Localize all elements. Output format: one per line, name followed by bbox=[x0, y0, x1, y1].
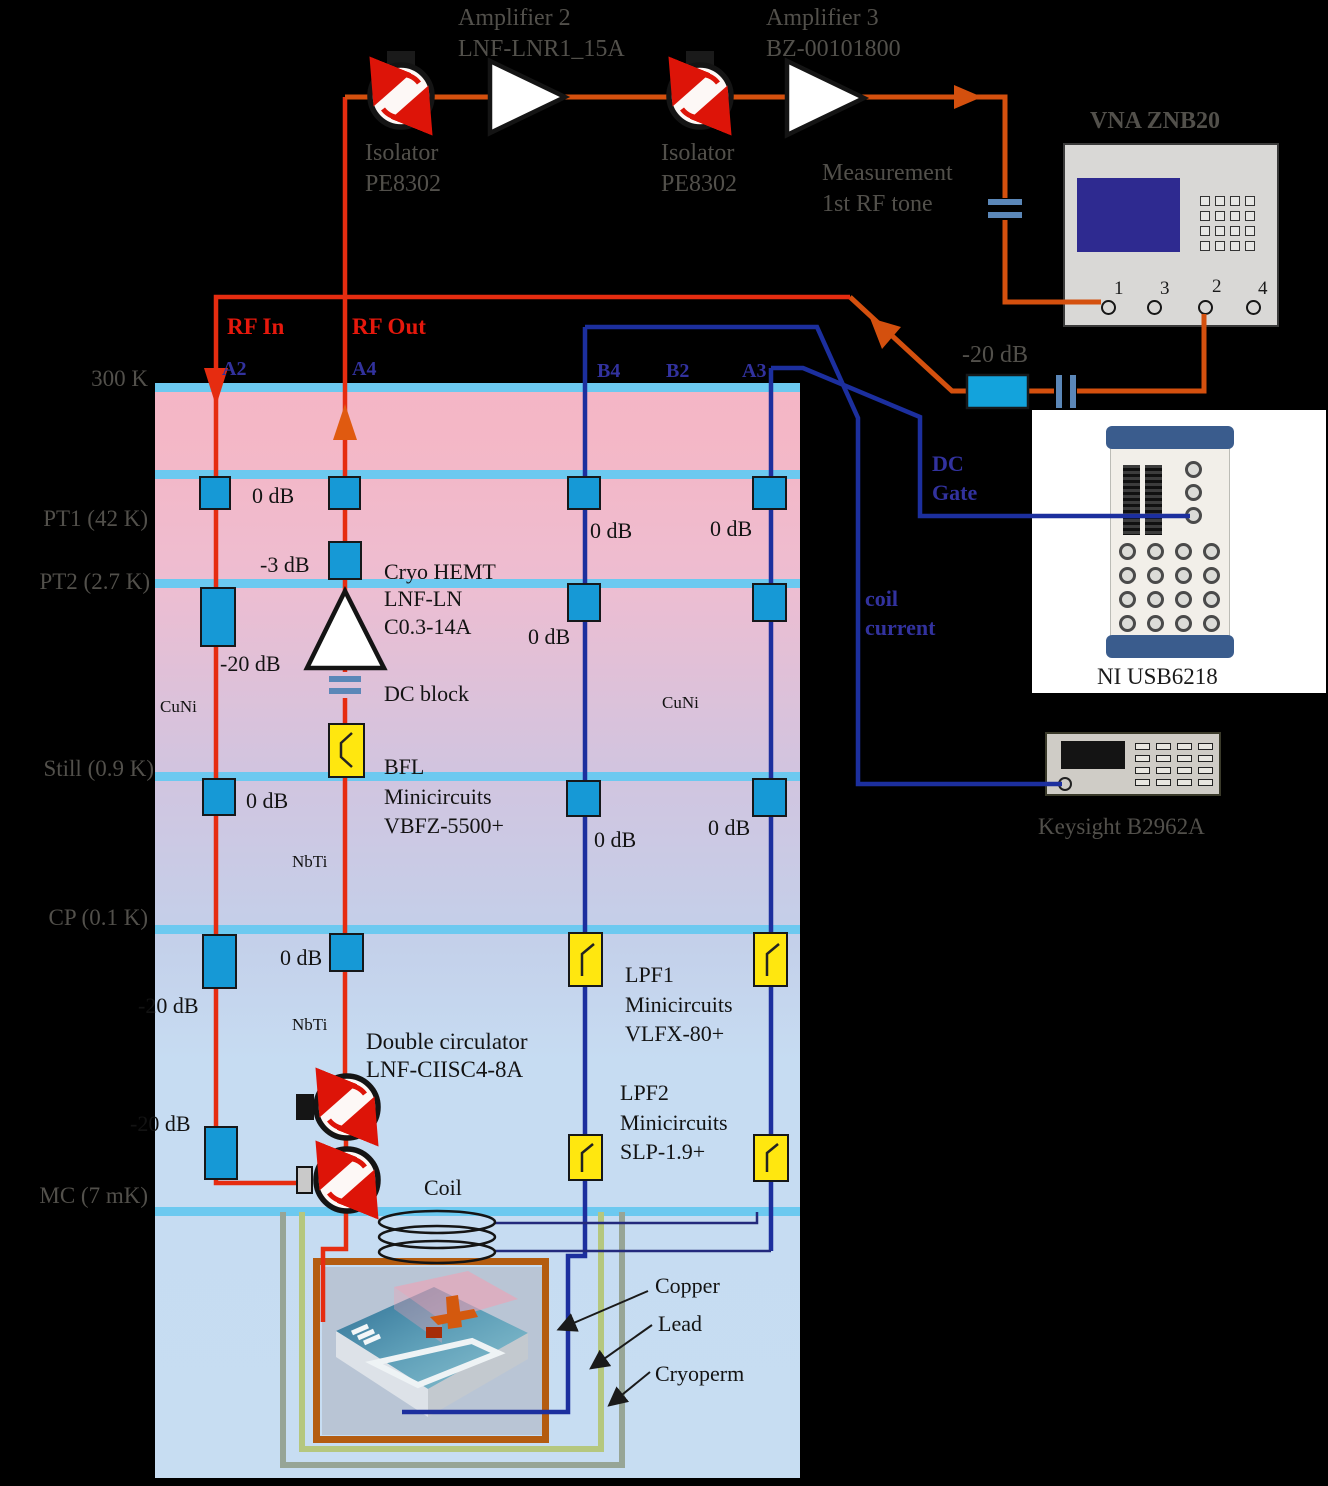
low-pass-filter-icon bbox=[570, 934, 601, 985]
cryo-hemt-amplifier-icon bbox=[307, 591, 384, 668]
lpf1-label: LPF1MinicircuitsVLFX-80+ bbox=[625, 960, 733, 1049]
rf-out-arrow-icon bbox=[333, 404, 357, 440]
stage-label-mc: MC (7 mK) bbox=[18, 1181, 148, 1211]
atten-label-b4-still: 0 dB bbox=[594, 826, 636, 855]
atten-label-a4-pt2: -3 dB bbox=[260, 551, 310, 580]
attenuator-a3-pt2 bbox=[752, 583, 787, 622]
port-a3-label: A3 bbox=[742, 358, 766, 384]
stage-label-pt1: PT1 (42 K) bbox=[18, 504, 148, 534]
attenuator-a3-pt1 bbox=[752, 476, 787, 510]
dc-gate-label: DCGate bbox=[932, 450, 977, 507]
wire-material-nbti-upper: NbTi bbox=[292, 851, 327, 873]
low-pass-filter-icon bbox=[755, 1136, 787, 1180]
atten-label-a2-mc: -20 dB bbox=[130, 1110, 191, 1139]
port-a4-label: A4 bbox=[352, 356, 376, 382]
wire-coil-lead-ground bbox=[495, 1212, 757, 1223]
stage-label-300k: 300 K bbox=[18, 364, 148, 394]
amp-chain-arrow-icon bbox=[954, 85, 982, 109]
wiring-diagram-canvas: 1 3 2 4 bbox=[0, 0, 1328, 1486]
vna-port-3-number: 3 bbox=[1160, 278, 1170, 300]
attenuator-a2-still bbox=[202, 778, 236, 816]
source-meter-label: Keysight B2962A bbox=[1038, 812, 1205, 842]
lpf2-a3-box bbox=[753, 1134, 789, 1182]
isolator-1-icon bbox=[370, 51, 432, 127]
stage-label-cp: CP (0.1 K) bbox=[18, 903, 148, 933]
wire-material-nbti-lower: NbTi bbox=[292, 1014, 327, 1036]
vna-port-2-number: 2 bbox=[1212, 276, 1222, 298]
rf-out-label: RF Out bbox=[352, 312, 426, 342]
low-pass-filter-icon bbox=[570, 1136, 601, 1179]
low-pass-filter-icon bbox=[755, 934, 786, 985]
isolator-1-label: IsolatorPE8302 bbox=[365, 138, 441, 200]
wire-material-cuni-right: CuNi bbox=[662, 692, 699, 714]
attenuator-a3-still bbox=[752, 778, 787, 817]
isolator-2-icon bbox=[669, 51, 731, 127]
atten-label-a4-cp: 0 dB bbox=[280, 944, 322, 973]
amplifier-3-icon bbox=[787, 61, 864, 135]
lpf2-label: LPF2MinicircuitsSLP-1.9+ bbox=[620, 1078, 728, 1167]
port-b2-label: B2 bbox=[666, 358, 689, 384]
attenuator-b4-still bbox=[566, 780, 601, 817]
amplifier-2-label: Amplifier 2LNF-LNR1_15A bbox=[458, 3, 625, 65]
amplifier-2-icon bbox=[490, 61, 565, 133]
atten-label-a2-pt2: -20 dB bbox=[220, 650, 281, 679]
lpf1-a3-box bbox=[753, 932, 788, 987]
band-pass-filter-icon bbox=[330, 725, 363, 776]
wire-material-cuni-left: CuNi bbox=[160, 696, 197, 718]
lead-pointer-arrow bbox=[594, 1325, 652, 1366]
copper-shield-label: Copper bbox=[655, 1272, 720, 1301]
atten-label-a2-cp: -20 dB bbox=[138, 992, 199, 1021]
wiring-layer bbox=[0, 0, 1328, 1486]
coil-icon bbox=[379, 1211, 495, 1263]
atten-label-pt1-pair: 0 dB bbox=[252, 482, 294, 511]
coil-current-label: coilcurrent bbox=[865, 585, 935, 642]
atten-label-a3-pt1: 0 dB bbox=[710, 515, 752, 544]
dc-block-capacitor-hemt bbox=[329, 676, 361, 694]
hemt-label: Cryo HEMTLNF-LNC0.3-14A bbox=[384, 558, 496, 640]
port-b4-label: B4 bbox=[597, 358, 620, 384]
attenuator-a4-minus3db bbox=[328, 541, 362, 580]
attenuator-a2-minus20db-pt2 bbox=[200, 587, 236, 647]
port2-return-arrow-icon bbox=[870, 318, 901, 349]
lpf1-b4-box bbox=[568, 932, 603, 987]
dc-block-capacitor-top bbox=[988, 199, 1022, 218]
atten-label-a3-still: 0 dB bbox=[708, 814, 750, 843]
dc-block-label: DC block bbox=[384, 680, 469, 709]
stage-label-still: Still (0.9 K) bbox=[14, 754, 154, 784]
measurement-tone-note: Measurement1st RF tone bbox=[822, 158, 953, 220]
coil-label: Coil bbox=[424, 1174, 462, 1203]
amplifier-3-label: Amplifier 3BZ-00101800 bbox=[766, 3, 901, 65]
ni-daq-label: NI USB6218 bbox=[1097, 662, 1218, 692]
cryoperm-pointer-arrow bbox=[612, 1372, 650, 1403]
circulator-lower-icon bbox=[297, 1149, 378, 1211]
stage-label-pt2: PT2 (2.7 K) bbox=[18, 567, 150, 597]
atten-label-a2-still: 0 dB bbox=[246, 787, 288, 816]
attenuator-a4-pt1 bbox=[328, 476, 361, 510]
vna-port-1-number: 1 bbox=[1114, 278, 1124, 300]
attenuator-a2-minus20db-cp bbox=[202, 934, 237, 989]
vna-port-4-number: 4 bbox=[1258, 278, 1268, 300]
atten-label-b4-pt2: 0 dB bbox=[528, 623, 570, 652]
port-a2-label: A2 bbox=[222, 356, 246, 382]
atten-label-b4-pt1: 0 dB bbox=[590, 517, 632, 546]
circulator-upper-icon bbox=[296, 1076, 378, 1138]
cryoperm-shield-label: Cryoperm bbox=[655, 1360, 744, 1389]
double-circulator-label: Double circulatorLNF-CIISC4-8A bbox=[366, 1028, 528, 1084]
copper-pointer-arrow bbox=[562, 1291, 648, 1328]
lpf2-b4-box bbox=[568, 1134, 603, 1181]
room-temp-attenuator-label: -20 dB bbox=[962, 340, 1028, 371]
rf-in-label: RF In bbox=[227, 312, 284, 342]
dc-block-capacitor-port2 bbox=[1056, 375, 1076, 408]
room-temp-attenuator-box bbox=[967, 375, 1028, 408]
attenuator-b4-pt1 bbox=[567, 476, 601, 510]
vna-title: VNA ZNB20 bbox=[1090, 106, 1220, 137]
attenuator-a2-minus20db-mc bbox=[204, 1126, 238, 1180]
attenuator-a2-pt1 bbox=[199, 476, 231, 510]
bfl-filter-box bbox=[328, 723, 365, 778]
lead-shield-label: Lead bbox=[658, 1310, 702, 1339]
isolator-2-label: IsolatorPE8302 bbox=[661, 138, 737, 200]
wire-rf-in-line bbox=[216, 297, 850, 1183]
attenuator-b4-pt2 bbox=[567, 583, 601, 622]
bfl-label: BFLMinicircuitsVBFZ-5500+ bbox=[384, 752, 504, 841]
attenuator-a4-cp bbox=[329, 933, 364, 972]
